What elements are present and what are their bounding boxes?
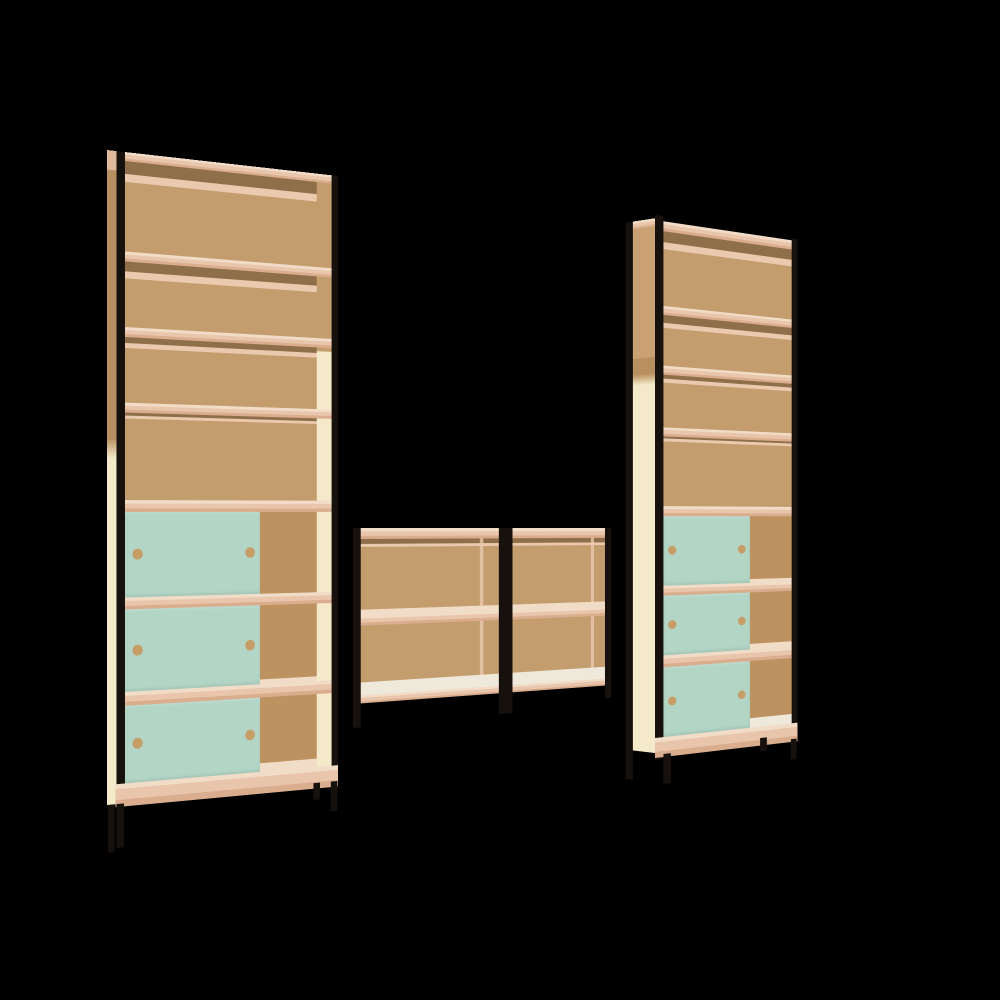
- shelf-cell-door-row: [663, 516, 792, 586]
- frame-rail-right: [605, 528, 611, 698]
- tower-interior: [125, 152, 332, 783]
- shelf-cell: [361, 620, 499, 695]
- inner-wall-highlight: [480, 538, 483, 611]
- door-handle-hole-icon: [668, 696, 676, 706]
- frame-rail-left: [655, 215, 663, 760]
- leg-rear-right: [760, 737, 767, 751]
- door-handle-hole-icon: [738, 690, 746, 699]
- door-handle-hole-icon: [132, 549, 142, 560]
- shelf-cell: [361, 538, 499, 615]
- sliding-door[interactable]: [663, 516, 750, 586]
- leg-front-left: [116, 803, 124, 848]
- door-handle-hole-icon: [132, 737, 142, 749]
- sliding-door[interactable]: [125, 605, 260, 692]
- door-handle-hole-icon: [738, 616, 746, 625]
- door-handle-hole-icon: [668, 546, 676, 555]
- shelf-cell-door-row: [125, 603, 317, 692]
- bridge-right-unit[interactable]: [512, 528, 604, 692]
- door-handle-hole-icon: [245, 547, 255, 558]
- sliding-door[interactable]: [125, 512, 260, 598]
- shelf-band: [663, 506, 792, 516]
- shelf-cell: [663, 436, 792, 507]
- bridge-shelves[interactable]: [353, 528, 613, 733]
- leg-front-left: [663, 753, 670, 784]
- right-bookcase[interactable]: [655, 215, 797, 790]
- frame-rail-left: [116, 151, 124, 804]
- leg-rear-right: [313, 783, 320, 800]
- shelf-cell-door-row: [663, 591, 792, 656]
- frame-rail-left: [353, 528, 361, 728]
- door-handle-hole-icon: [245, 729, 255, 740]
- bridge-left-unit[interactable]: [361, 528, 499, 703]
- shelf-cell: [512, 538, 604, 610]
- shelf-cell: [125, 337, 317, 409]
- left-bookcase[interactable]: [107, 150, 338, 855]
- door-handle-hole-icon: [668, 620, 676, 629]
- frame-rail-right: [792, 238, 798, 741]
- shelf-cell: [512, 616, 604, 685]
- scene: [0, 0, 1000, 1000]
- leg-rear-left: [108, 804, 115, 853]
- sliding-door[interactable]: [663, 592, 750, 655]
- sliding-door[interactable]: [663, 661, 750, 737]
- side-panel-edge: [107, 150, 116, 805]
- tower-interior: [663, 216, 792, 737]
- shelf-cell-door-row: [125, 512, 317, 598]
- shelf-band: [512, 528, 604, 538]
- shelf-band: [361, 528, 499, 539]
- frame-rail-rear-left: [626, 222, 633, 780]
- leg-front-right: [331, 781, 338, 811]
- leg-front-right: [791, 739, 797, 760]
- shelf-cell: [125, 413, 317, 501]
- sliding-door[interactable]: [125, 698, 260, 784]
- door-handle-hole-icon: [245, 639, 255, 650]
- door-handle-hole-icon: [132, 644, 142, 655]
- inner-side-wall-upper: [317, 174, 332, 352]
- shelf-band: [125, 500, 332, 512]
- door-handle-hole-icon: [738, 545, 746, 554]
- shelf-cell: [663, 375, 792, 434]
- frame-rail-center: [499, 528, 513, 714]
- back-top-edge: [361, 543, 499, 547]
- frame-rail-right: [332, 175, 339, 781]
- inner-wall-highlight: [591, 538, 594, 607]
